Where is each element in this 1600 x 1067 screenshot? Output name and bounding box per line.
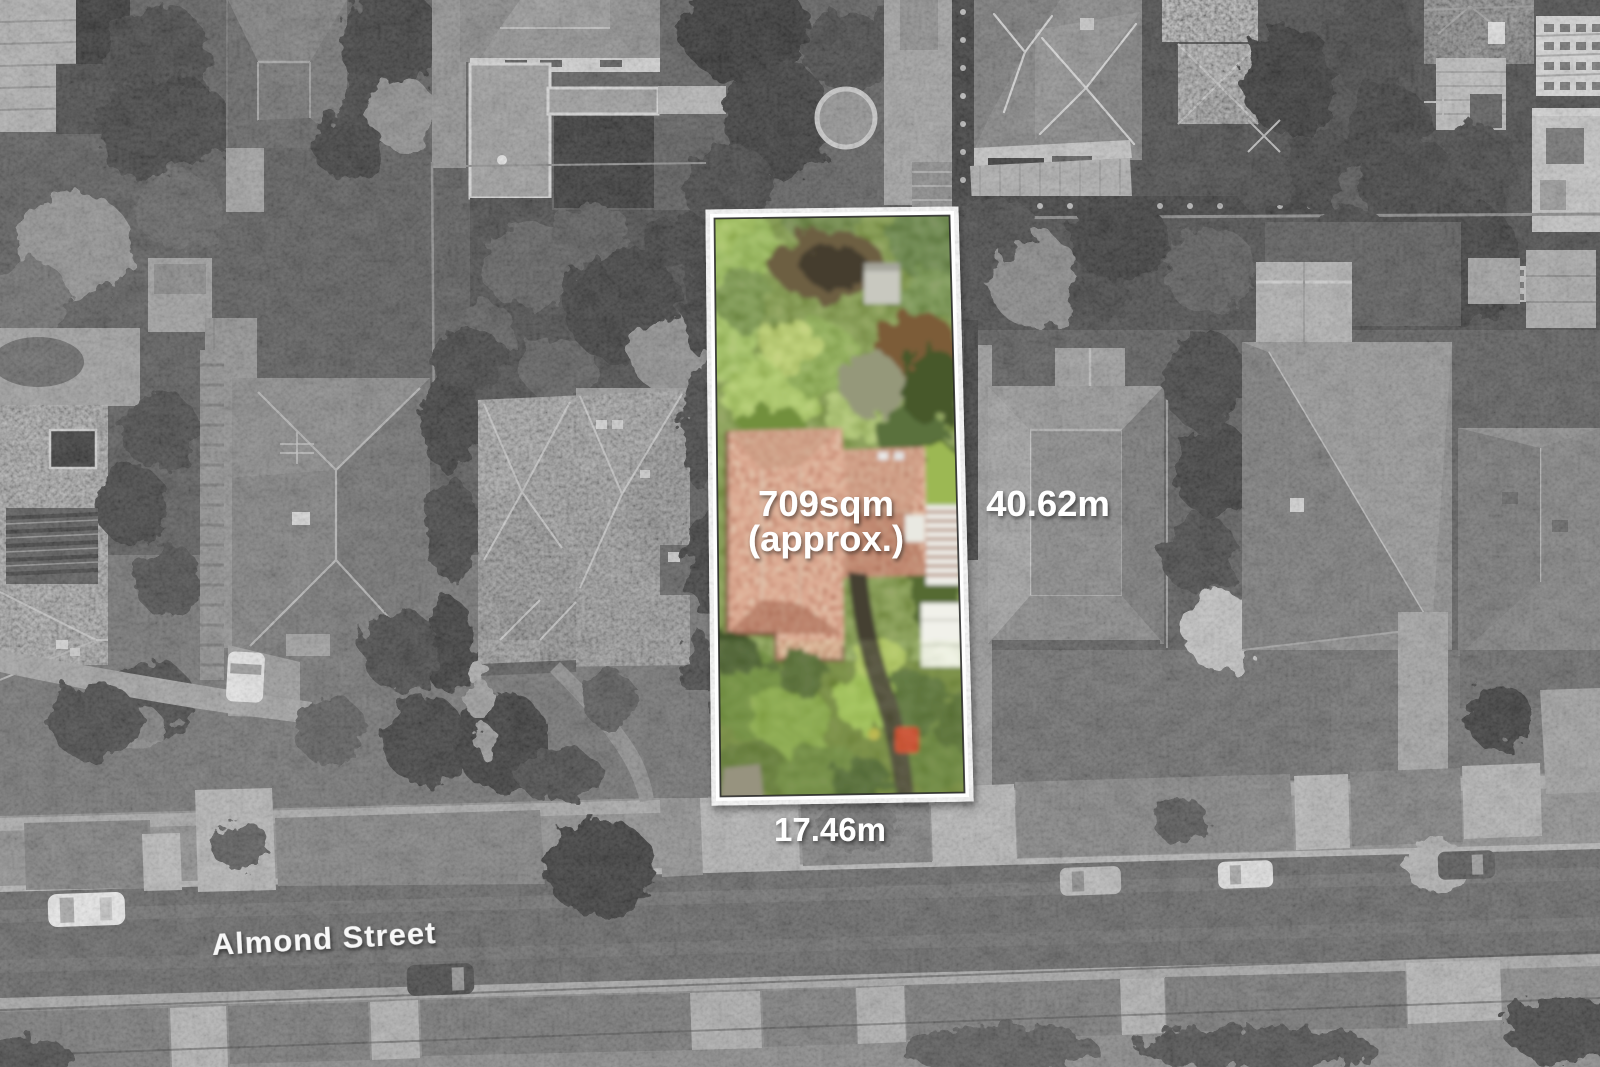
svg-text:(approx.): (approx.) bbox=[748, 518, 904, 559]
svg-text:17.46m: 17.46m bbox=[774, 811, 886, 848]
svg-text:40.62m: 40.62m bbox=[986, 483, 1110, 524]
